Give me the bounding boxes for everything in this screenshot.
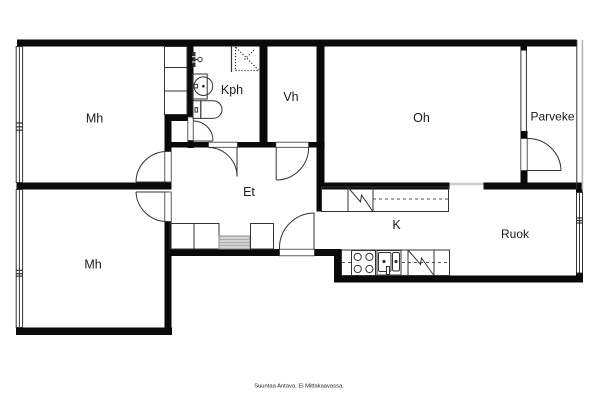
svg-text:Mh: Mh xyxy=(84,258,101,272)
svg-text:Suuntaa Antava, Ei Mittakaavas: Suuntaa Antava, Ei Mittakaavassa. xyxy=(254,384,344,390)
svg-text:Kph: Kph xyxy=(221,83,243,97)
svg-text:Mh: Mh xyxy=(86,112,103,126)
svg-text:Vh: Vh xyxy=(283,90,298,104)
svg-text:Oh: Oh xyxy=(413,111,430,125)
svg-text:Et: Et xyxy=(243,185,255,199)
svg-text:Parveke: Parveke xyxy=(530,110,574,124)
svg-text:K: K xyxy=(392,218,401,232)
svg-text:Ruok: Ruok xyxy=(501,227,530,241)
